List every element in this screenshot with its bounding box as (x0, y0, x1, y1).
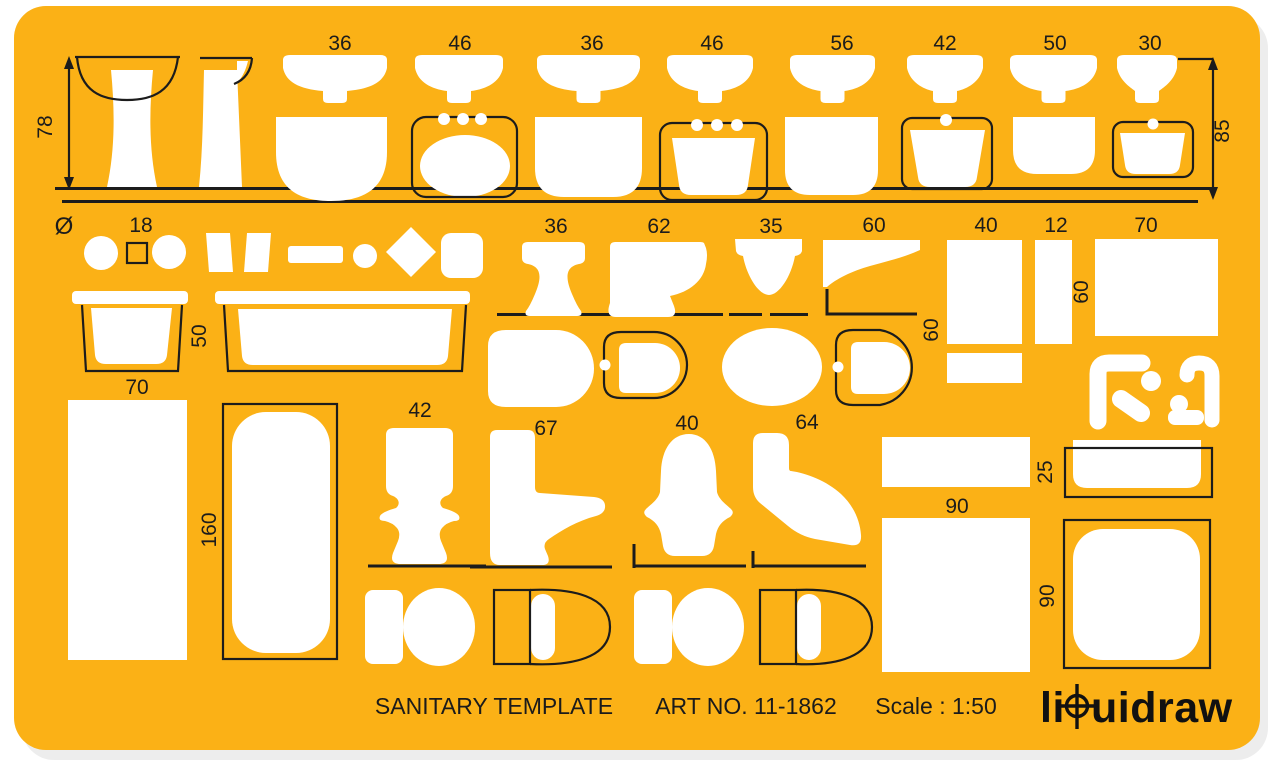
dim-column-60: 60 (1070, 280, 1093, 303)
dim-row2-62: 62 (647, 215, 670, 238)
dim-seat-60: 60 (920, 318, 943, 341)
dim-bidet-40: 40 (675, 412, 698, 435)
rect-12 (1035, 240, 1072, 344)
tap-hole-dot (438, 113, 450, 125)
dim-wc-42: 42 (408, 399, 431, 422)
seat-hinge-dot (600, 360, 611, 371)
wc-seat-oval (722, 328, 822, 406)
dim-top-56: 56 (830, 32, 853, 55)
dim-bath-50: 50 (188, 324, 211, 347)
dim-wc-67: 67 (534, 417, 557, 440)
basin-30-plan-bowl (1120, 133, 1185, 174)
tap-hole-dot (711, 119, 723, 131)
rect-40 (947, 240, 1022, 344)
tap-hole-dot (691, 119, 703, 131)
basin-46b-plan-bowl (672, 138, 755, 195)
tap-hole-dot (1148, 119, 1159, 130)
circle-shape-3 (353, 244, 377, 268)
dim-bidet-64: 64 (795, 411, 819, 434)
cistern-capsule-1 (531, 594, 555, 660)
shower-90-square (882, 518, 1030, 672)
dim-row2-40: 40 (974, 214, 997, 237)
product-title: SANITARY TEMPLATE (375, 693, 613, 719)
tap-left-spout (1141, 371, 1161, 391)
dim-row2-60: 60 (862, 214, 885, 237)
cistern-capsule-2 (797, 594, 821, 660)
tap-hole-dot (457, 113, 469, 125)
cistern-solid-2 (634, 590, 672, 664)
wc-seat-solid-1 (488, 330, 594, 407)
dim-top-30: 30 (1138, 32, 1161, 55)
tap-hole-dot (731, 119, 743, 131)
dim-shower-90: 90 (1036, 584, 1059, 607)
dim-shelf-25: 25 (1034, 460, 1057, 483)
dim-bath-70: 70 (125, 376, 148, 399)
dim-top-46: 46 (448, 32, 471, 55)
cistern-solid-1 (365, 590, 403, 664)
wc-seat-inner-1 (619, 343, 680, 393)
basin-56-plan (785, 117, 878, 195)
wc-seat-inner-2 (851, 342, 910, 394)
bathtub-large-basin (238, 309, 452, 365)
circle-shape-2 (152, 235, 186, 269)
dim-top-36: 36 (328, 32, 351, 55)
tap-hole-dot (940, 114, 952, 126)
tub-capsule-160 (232, 412, 330, 653)
bowl-solid-2 (672, 588, 744, 666)
shelf-strip (947, 353, 1022, 383)
bar-shape (288, 246, 343, 263)
rounded-square-shape (441, 233, 483, 278)
basin-36b-plan (535, 117, 642, 197)
dim-top-46b: 46 (700, 32, 723, 55)
dim-right-85: 85 (1211, 119, 1234, 142)
tap-hole-dot (475, 113, 487, 125)
tap-right-base (1168, 410, 1204, 425)
tray-90-rect (882, 437, 1030, 487)
dim-row2-12: 12 (1044, 214, 1067, 237)
dim-18: 18 (129, 214, 152, 237)
pedestal-sink-1-column (107, 70, 157, 187)
dim-top-36b: 36 (580, 32, 603, 55)
dim-row2-70: 70 (1134, 214, 1157, 237)
dim-top-50: 50 (1043, 32, 1066, 55)
shower-90-inner (1073, 529, 1200, 660)
circle-shape-1 (84, 236, 118, 270)
seat-hinge-dot (833, 362, 844, 373)
bathtub-large-rim (215, 291, 470, 304)
bathtub-small-rim (72, 291, 188, 304)
scale-label: Scale : 1:50 (875, 693, 996, 719)
basin-36-plan (276, 117, 387, 201)
art-number: ART NO. 11-1862 (655, 693, 837, 719)
tap-left-handle (1121, 399, 1141, 413)
basin-42-plan-bowl (910, 130, 985, 187)
dim-row2-36: 36 (544, 215, 567, 238)
bowl-solid-1 (403, 588, 475, 666)
dim-left-78: 78 (34, 115, 57, 138)
dim-row2-35: 35 (759, 215, 782, 238)
dim-tray-90: 90 (945, 495, 968, 518)
bathtub-small-basin (91, 308, 172, 364)
taper-column-1 (206, 233, 233, 272)
logo-text-prefix: li (1040, 684, 1065, 732)
rect-70 (1095, 239, 1218, 336)
dim-tub-160: 160 (198, 512, 221, 547)
logo-text-suffix: uidraw (1091, 684, 1233, 732)
tub-rect-70 (68, 400, 187, 660)
pedestal-sink-2-column (199, 70, 242, 187)
sanitary-template-image: 36 46 36 46 56 42 50 30 78 85 Ø 18 36 62… (0, 0, 1280, 768)
basin-50-plan (1013, 117, 1095, 174)
dim-top-42: 42 (933, 32, 956, 55)
basin-46-plan-bowl (420, 135, 510, 197)
taper-column-2 (244, 233, 271, 272)
footer: SANITARY TEMPLATE ART NO. 11-1862 Scale … (375, 693, 997, 719)
diameter-symbol: Ø (55, 213, 74, 240)
